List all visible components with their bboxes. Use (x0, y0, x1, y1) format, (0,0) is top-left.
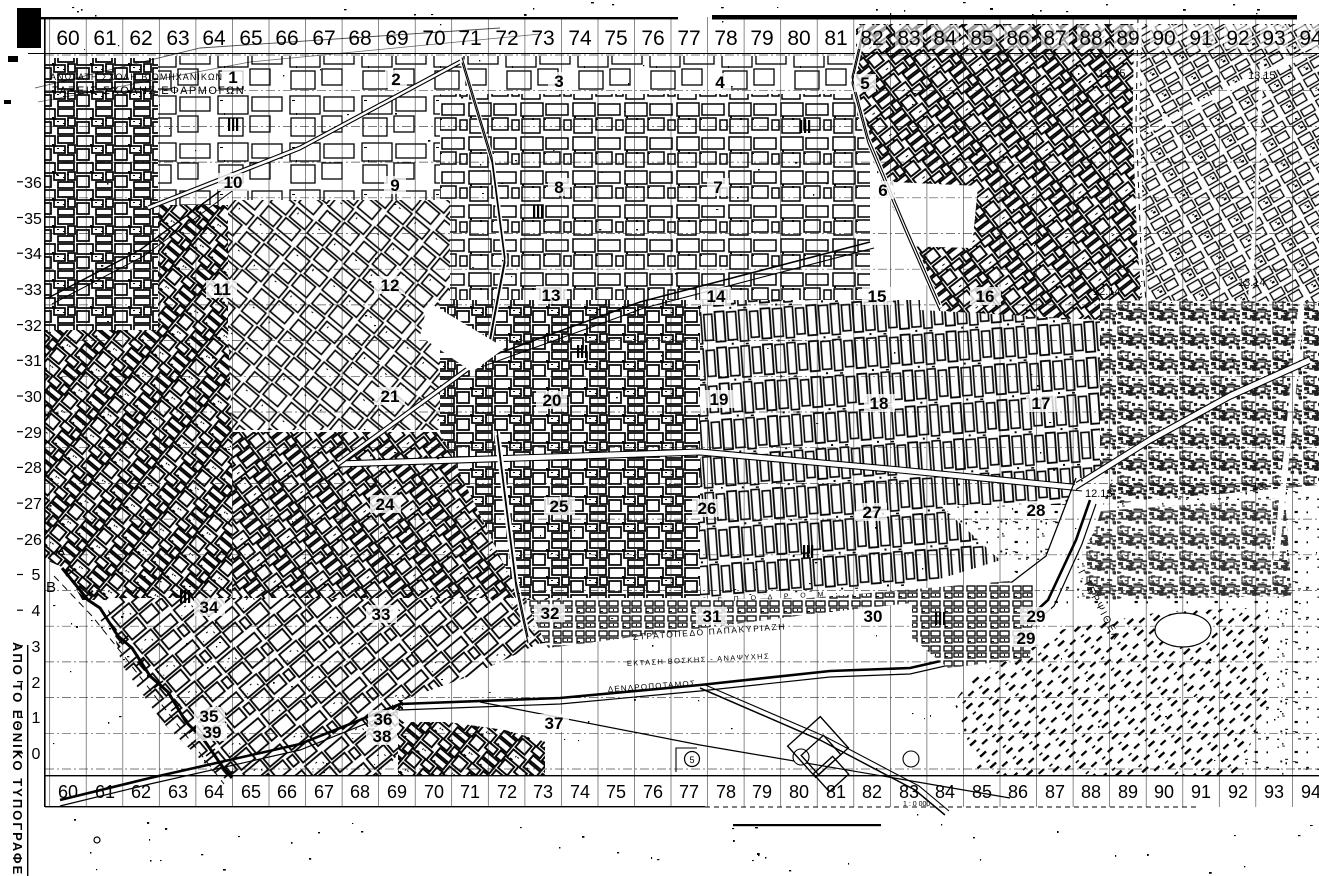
svg-text:84: 84 (935, 782, 955, 802)
svg-text:A: A (55, 542, 65, 559)
svg-text:72: 72 (495, 27, 518, 50)
svg-text:89: 89 (1116, 27, 1139, 50)
svg-text:31: 31 (24, 353, 42, 370)
svg-text:ΤΑΞΕΙΣ ΣΧΟΛΗΣ ΕΦΑΡΜΟΓΩΝ: ΤΑΞΕΙΣ ΣΧΟΛΗΣ ΕΦΑΡΜΟΓΩΝ (52, 85, 245, 97)
svg-text:34: 34 (24, 246, 42, 263)
svg-text:5: 5 (860, 74, 869, 93)
svg-text:63: 63 (166, 27, 189, 50)
svg-text:72: 72 (497, 782, 517, 802)
svg-text:93: 93 (1262, 27, 1285, 50)
svg-text:78: 78 (716, 782, 736, 802)
svg-text:64: 64 (204, 782, 224, 802)
svg-text:29: 29 (1027, 607, 1046, 626)
svg-text:6: 6 (878, 181, 887, 200)
svg-text:29: 29 (1017, 629, 1036, 648)
svg-text:4: 4 (32, 603, 41, 620)
svg-text:75: 75 (604, 27, 627, 50)
svg-text:64: 64 (202, 27, 226, 50)
svg-text:62: 62 (131, 782, 151, 802)
svg-text:19: 19 (710, 390, 729, 409)
svg-text:26: 26 (698, 499, 717, 518)
svg-text:81: 81 (824, 27, 847, 50)
svg-text:71: 71 (460, 782, 480, 802)
svg-text:B: B (46, 579, 56, 596)
svg-text:84: 84 (933, 27, 957, 50)
svg-text:73: 73 (533, 782, 553, 802)
svg-text:73: 73 (531, 27, 554, 50)
svg-text:74: 74 (570, 782, 590, 802)
svg-text:28: 28 (24, 460, 42, 477)
svg-text:7: 7 (713, 178, 722, 197)
svg-text:ΑΝΩΤΑΤΗ ΣΧΟΛΗ ΒΙΟΜΗΧΑΝΙΚΩΝ: ΑΝΩΤΑΤΗ ΣΧΟΛΗ ΒΙΟΜΗΧΑΝΙΚΩΝ (50, 72, 223, 82)
svg-text:31: 31 (703, 607, 722, 626)
svg-text:13: 13 (542, 286, 561, 305)
svg-text:78: 78 (714, 27, 737, 50)
svg-text:12.15: 12.15 (1098, 68, 1126, 80)
svg-text:32: 32 (541, 604, 560, 623)
svg-text:8: 8 (554, 178, 563, 197)
svg-text:28: 28 (1027, 501, 1046, 520)
svg-text:67: 67 (312, 27, 335, 50)
svg-text:26: 26 (24, 532, 42, 549)
svg-text:63: 63 (168, 782, 188, 802)
svg-text:60: 60 (58, 782, 78, 802)
svg-text:68: 68 (348, 27, 371, 50)
svg-text:80: 80 (789, 782, 809, 802)
svg-text:33: 33 (372, 605, 391, 624)
svg-text:5: 5 (689, 755, 694, 765)
svg-text:37: 37 (545, 714, 564, 733)
svg-text:35: 35 (24, 211, 42, 228)
svg-text:89: 89 (1118, 782, 1138, 802)
svg-text:ΑΠΟ ΤΟ ΕΘΝΙΚΟ ΤΥΠΟΓΡΑΦΕΙΟ: ΑΠΟ ΤΟ ΕΘΝΙΚΟ ΤΥΠΟΓΡΑΦΕΙΟ (10, 642, 25, 876)
svg-text:82: 82 (862, 782, 882, 802)
svg-text:30: 30 (864, 607, 883, 626)
svg-text:62: 62 (129, 27, 152, 50)
svg-text:2: 2 (32, 675, 41, 692)
svg-text:16: 16 (976, 287, 995, 306)
svg-text:27: 27 (24, 496, 42, 513)
svg-text:70: 70 (424, 782, 444, 802)
svg-text:80: 80 (787, 27, 810, 50)
svg-text:75: 75 (606, 782, 626, 802)
svg-text:66: 66 (275, 27, 298, 50)
svg-text:17: 17 (1032, 394, 1051, 413)
svg-text:77: 77 (679, 782, 699, 802)
svg-text:87: 87 (1045, 782, 1065, 802)
svg-text:70: 70 (422, 27, 445, 50)
svg-text:79: 79 (752, 782, 772, 802)
svg-text:94: 94 (1301, 782, 1319, 802)
svg-text:21: 21 (381, 387, 400, 406)
svg-text:85: 85 (972, 782, 992, 802)
svg-text:18: 18 (870, 394, 889, 413)
svg-text:92: 92 (1226, 27, 1249, 50)
svg-text:88: 88 (1079, 27, 1102, 50)
svg-text:82: 82 (860, 27, 883, 50)
svg-text:14: 14 (707, 287, 726, 306)
svg-text:24: 24 (376, 495, 395, 514)
svg-text:86: 86 (1006, 27, 1029, 50)
svg-text:27: 27 (863, 503, 882, 522)
svg-text:12: 12 (381, 276, 400, 295)
svg-text:76: 76 (641, 27, 664, 50)
svg-text:65: 65 (241, 782, 261, 802)
svg-text:61: 61 (95, 782, 115, 802)
svg-text:69: 69 (385, 27, 408, 50)
svg-text:32: 32 (24, 318, 42, 335)
svg-text:10: 10 (224, 173, 243, 192)
svg-text:91: 91 (1191, 782, 1211, 802)
svg-text:71: 71 (458, 27, 481, 50)
svg-text:87: 87 (1043, 27, 1066, 50)
svg-text:13: 13 (1252, 481, 1264, 493)
svg-text:4: 4 (715, 73, 725, 92)
svg-text:60: 60 (56, 27, 79, 50)
svg-text:83: 83 (899, 782, 919, 802)
svg-text:15: 15 (868, 287, 887, 306)
svg-text:5: 5 (32, 567, 41, 584)
svg-text:9: 9 (390, 176, 399, 195)
svg-text:38: 38 (373, 727, 392, 746)
svg-text:88: 88 (1081, 782, 1101, 802)
svg-text:93: 93 (1264, 782, 1284, 802)
svg-text:29: 29 (24, 425, 42, 442)
svg-text:79: 79 (750, 27, 773, 50)
svg-text:36: 36 (24, 175, 42, 192)
svg-text:74: 74 (568, 27, 592, 50)
svg-text:1 : 0 000: 1 : 0 000 (903, 801, 930, 808)
svg-text:76: 76 (643, 782, 663, 802)
svg-text:1: 1 (32, 710, 41, 727)
svg-text:90: 90 (1152, 27, 1175, 50)
svg-text:39: 39 (203, 723, 222, 742)
svg-text:66: 66 (277, 782, 297, 802)
svg-text:69: 69 (387, 782, 407, 802)
svg-text:83: 83 (897, 27, 920, 50)
svg-text:92: 92 (1228, 782, 1248, 802)
svg-text:65: 65 (239, 27, 262, 50)
svg-text:3: 3 (554, 72, 563, 91)
svg-text:20: 20 (543, 391, 562, 410)
svg-text:2: 2 (391, 70, 400, 89)
svg-text:3: 3 (32, 639, 41, 656)
svg-text:12.14: 12.14 (1093, 286, 1121, 298)
svg-text:68: 68 (350, 782, 370, 802)
svg-text:61: 61 (93, 27, 116, 50)
svg-text:34: 34 (200, 598, 219, 617)
svg-text:11: 11 (213, 280, 231, 299)
svg-text:0: 0 (32, 746, 41, 763)
svg-text:13.14: 13.14 (1238, 277, 1266, 289)
svg-text:12.13: 12.13 (1085, 488, 1113, 500)
svg-text:33: 33 (24, 282, 42, 299)
svg-text:67: 67 (314, 782, 334, 802)
svg-text:86: 86 (1008, 782, 1028, 802)
svg-text:13.15: 13.15 (1248, 70, 1276, 82)
svg-text:25: 25 (550, 497, 569, 516)
svg-text:90: 90 (1154, 782, 1174, 802)
svg-text:91: 91 (1189, 27, 1212, 50)
svg-text:85: 85 (970, 27, 993, 50)
svg-text:30: 30 (24, 389, 42, 406)
svg-text:77: 77 (677, 27, 700, 50)
